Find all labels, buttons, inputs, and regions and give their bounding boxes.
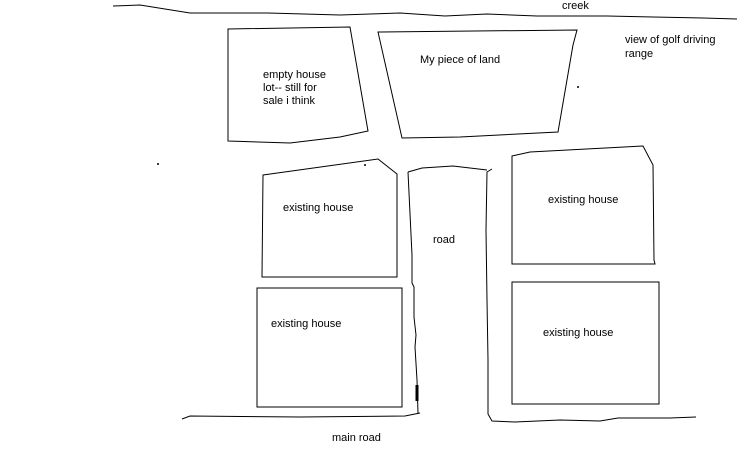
house-se-outline: [512, 282, 659, 404]
main-road-line: [182, 413, 420, 419]
main-road-label: main road: [332, 432, 381, 445]
road-top-curve: [408, 166, 487, 172]
stray-dot-right: [577, 86, 579, 88]
stray-dot-left: [157, 163, 159, 165]
house-se-label: existing house: [543, 327, 613, 340]
stray-dot-road-top: [364, 164, 366, 166]
sketch-canvas: creek view of golf driving range empty h…: [0, 0, 737, 456]
sketch-drawing: [0, 0, 737, 456]
golf-view-label: view of golf driving range: [625, 33, 716, 61]
my-land-outline: [378, 30, 577, 138]
my-land-label: My piece of land: [420, 54, 500, 67]
creek-line: [113, 5, 737, 19]
house-sw-label: existing house: [271, 318, 341, 331]
road-left-edge: [408, 172, 418, 413]
empty-lot-label: empty house lot-- still for sale i think: [263, 69, 326, 108]
house-nw-label: existing house: [283, 202, 353, 215]
house-nw-outline: [262, 159, 397, 277]
house-sw-outline: [257, 288, 402, 407]
creek-label: creek: [562, 0, 589, 13]
road-label: road: [433, 234, 455, 247]
house-ne-label: existing house: [548, 194, 618, 207]
